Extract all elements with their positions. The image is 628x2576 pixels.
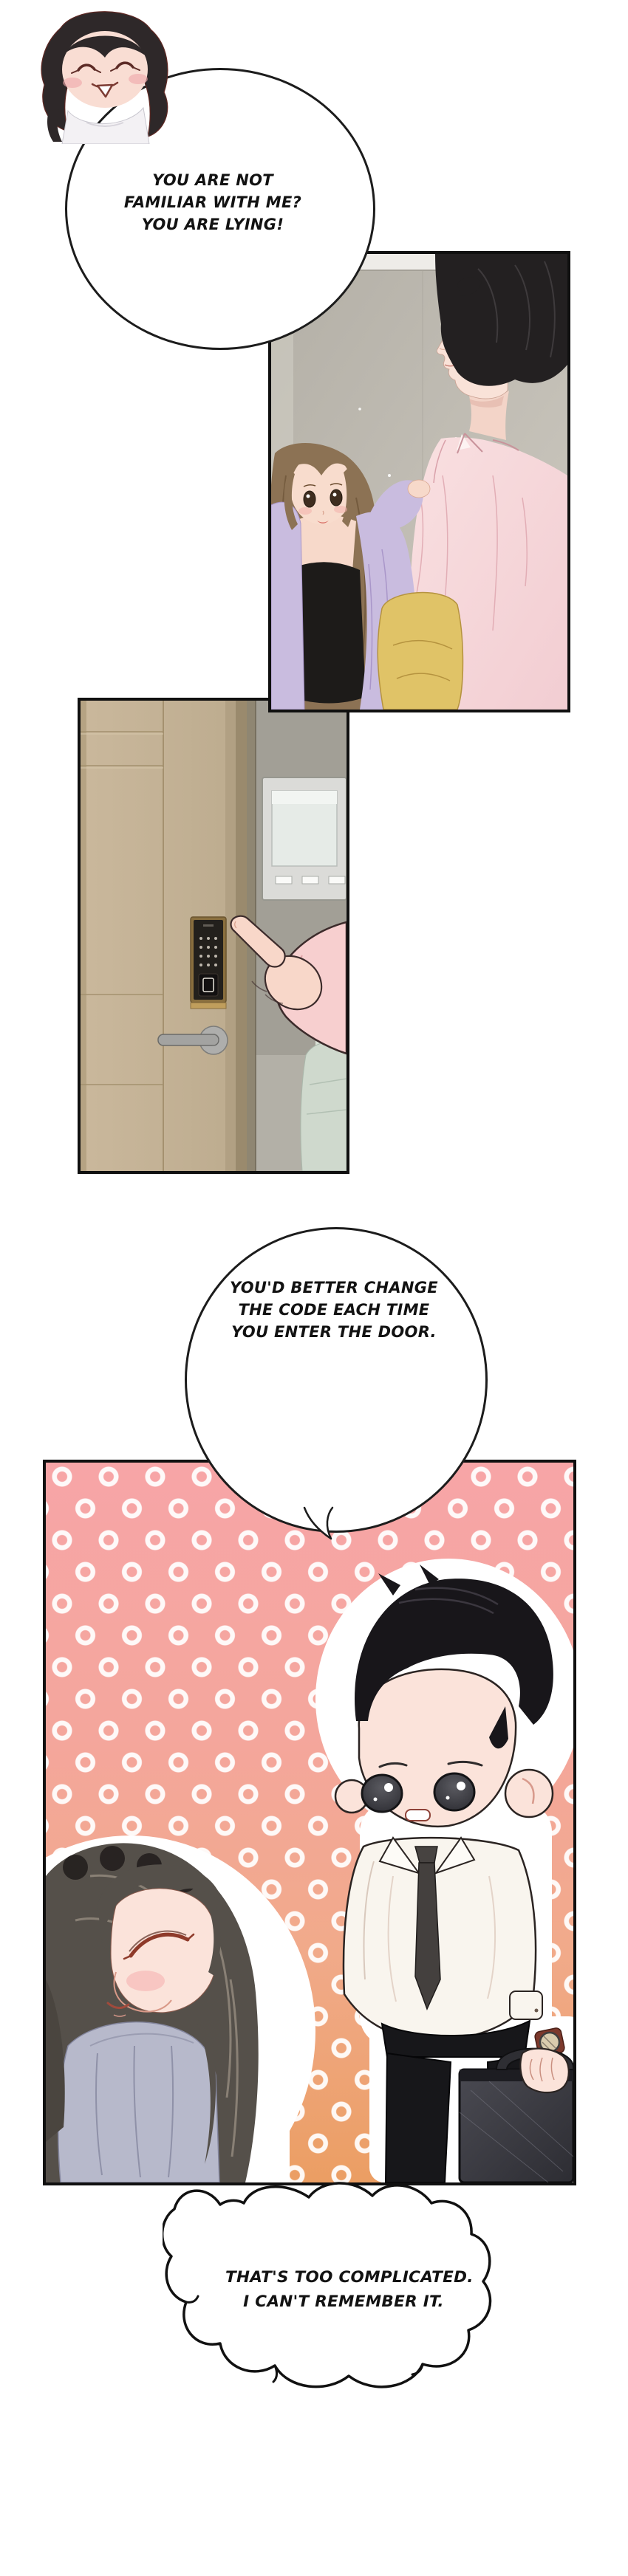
panel-door-art [81, 701, 347, 1171]
panel-chibi [43, 1460, 576, 2185]
yellow-bag [378, 593, 463, 710]
panel-couple-art [271, 254, 567, 710]
speech-bubble-mid-tail [297, 1506, 344, 1542]
panel-chibi-art [46, 1463, 573, 2182]
chibi-narrator [16, 0, 194, 144]
speech-bubble-mid [185, 1227, 488, 1533]
speech-line: THAT'S TOO COMPLICATED. [225, 2265, 462, 2290]
speech-line: YOU ENTER THE DOOR. [223, 1321, 445, 1343]
comic-page: YOU ARE NOT FAMILIAR WITH ME? YOU ARE LY… [0, 0, 628, 2576]
speech-text-mid: YOU'D BETTER CHANGE THE CODE EACH TIME Y… [223, 1277, 445, 1343]
speech-line: YOU'D BETTER CHANGE [223, 1277, 445, 1299]
speech-line: I CAN'T REMEMBER IT. [225, 2290, 462, 2314]
speech-text-top: YOU ARE NOT FAMILIAR WITH ME? YOU ARE LY… [95, 169, 331, 236]
speech-line: YOU ARE NOT [95, 169, 331, 191]
speech-line: YOU ARE LYING! [95, 213, 331, 236]
speech-line: FAMILIAR WITH ME? [95, 191, 331, 213]
wall-intercom [262, 777, 347, 900]
speech-line: THE CODE EACH TIME [223, 1299, 445, 1321]
panel-door [78, 698, 349, 1174]
speech-text-bottom: THAT'S TOO COMPLICATED. I CAN'T REMEMBER… [225, 2265, 462, 2314]
keypad-lock [191, 917, 226, 1009]
